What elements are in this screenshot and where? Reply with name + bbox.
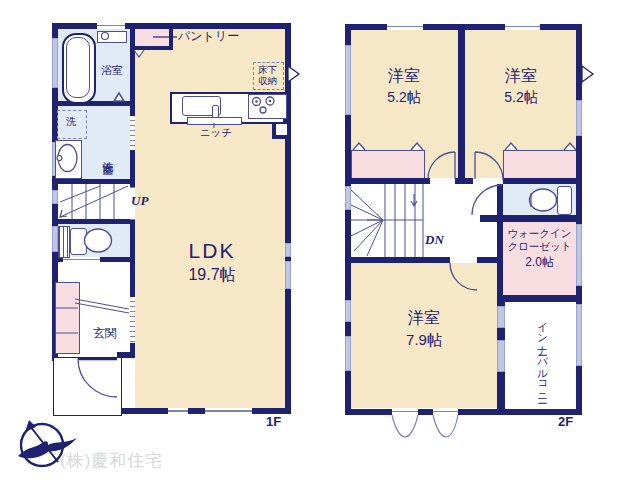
inner-balcony-label: インナーバルコニー <box>533 307 548 405</box>
ldk-label: LDK <box>172 239 252 263</box>
bath-door-mark <box>114 93 124 101</box>
wic-size-label: 2.0帖 <box>503 256 576 269</box>
stairs-dn-label: DN <box>425 233 444 248</box>
washbasin-faucet <box>57 156 62 161</box>
niche-label: ニッチ <box>195 127 237 139</box>
wic-label-1: ウォークイン <box>503 228 576 240</box>
floor1-label: 1F <box>266 415 281 430</box>
stairs-1f-treads <box>60 184 128 219</box>
vent-mark-1f <box>288 66 299 82</box>
floor-storage-label-2: 収納 <box>253 76 282 87</box>
washroom-label: 洗面室 <box>100 127 114 181</box>
wic-label-2: クローゼット <box>503 241 576 253</box>
stairs-2f-treads <box>351 184 423 257</box>
pantry-door-mark <box>134 50 144 57</box>
bath-counter-sink <box>102 33 109 40</box>
closet-open-marks <box>353 143 576 150</box>
entrance-label: 玄関 <box>85 327 125 340</box>
entrance-door <box>78 359 117 397</box>
vent-mark-2f <box>582 66 593 82</box>
stove-burners <box>253 97 275 113</box>
toilet-bowl-1f <box>85 229 112 252</box>
bedroom-c-size: 7.9帖 <box>392 332 456 349</box>
bedroom-c-label: 洋室 <box>392 309 456 327</box>
toilet-bowl-2f <box>530 189 557 211</box>
stairs-up-label: UP <box>131 194 148 209</box>
washer-label: 洗 <box>57 116 85 127</box>
floor2-label: 2F <box>558 415 573 430</box>
pantry-label: パントリー <box>178 30 239 43</box>
floorplan-canvas: 浴室 洗 洗面室 UP LDK 19.7帖 玄関 パントリー 床下 収納 ニッチ… <box>0 0 640 480</box>
company-watermark: (株)慶和住宅 <box>60 449 163 472</box>
bedroom-a-label: 洋室 <box>372 67 436 85</box>
doors-2f <box>428 152 503 290</box>
bathroom-label: 浴室 <box>92 64 132 76</box>
window-shutter-marks <box>392 415 458 437</box>
ldk-size-label: 19.7帖 <box>172 266 252 284</box>
bedroom-b-label: 洋室 <box>489 67 553 85</box>
bedroom-a-size: 5.2帖 <box>372 90 436 106</box>
bedroom-b-size: 5.2帖 <box>489 90 553 106</box>
